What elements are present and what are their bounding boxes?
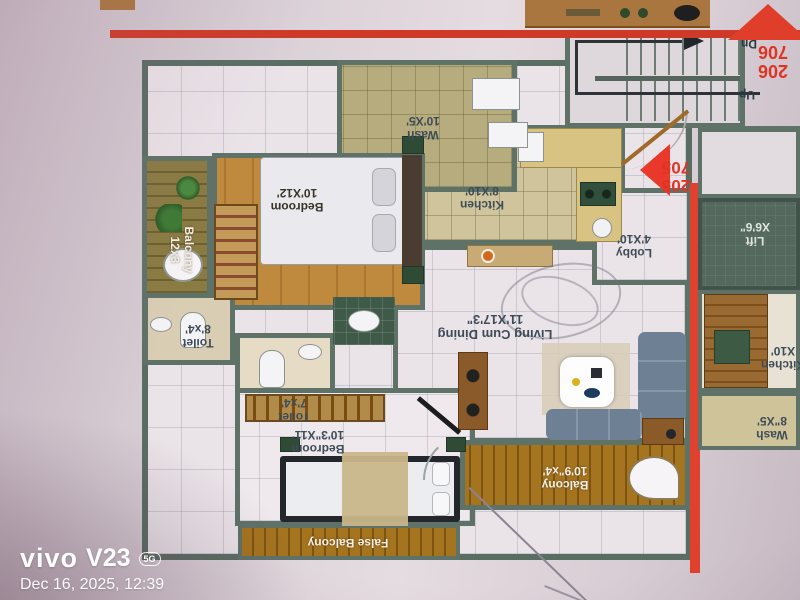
watermark-model: V23 [86, 544, 130, 573]
console-bowl-icon [481, 249, 495, 263]
adjacent-flat-hall [698, 128, 800, 198]
toilet-b-label: Toilet7'x4' [258, 396, 330, 424]
flat-number-corner: 206 706 [746, 42, 800, 80]
stair-arrow-line-3 [575, 40, 682, 43]
red-roof-mark [728, 4, 800, 40]
wash-sink-icon [488, 122, 528, 148]
living-label: Living Cum Dining11'X17'3" [425, 311, 565, 342]
tv-unit [458, 352, 488, 430]
table-decor-bowl [572, 378, 580, 386]
false-balcony-label: False Balcony [268, 536, 428, 550]
bed-master-pillow-1 [372, 214, 396, 252]
photo-of-floor-plan: Up Dn [0, 0, 800, 600]
bed-second-blanket [342, 452, 408, 526]
neighbour-strip-appliance [674, 5, 700, 21]
toilet-b-basin-icon [298, 344, 322, 360]
washing-machine-icon [472, 78, 520, 110]
bed-master-pillow-2 [372, 168, 396, 206]
bed-master-headboard [402, 155, 422, 267]
wash-label: Wash10'X5' [368, 114, 478, 142]
bedroom-second-label: Bedroom10'3"X11' [248, 428, 388, 456]
dining-table [560, 357, 614, 407]
balcony-side-label-wrap: Balcony12x3 [150, 180, 214, 320]
sofa-long [638, 332, 686, 422]
neighbour-strip-shelf [566, 9, 600, 16]
console-partition [467, 245, 553, 267]
bed-second-pillow-1 [432, 492, 450, 516]
neighbour-strip-corner [100, 0, 135, 10]
watermark-brand: vivo [20, 543, 78, 574]
camera-watermark: vivo V23 5G Dec 16, 2025, 12:39 [20, 543, 164, 594]
stairs-up-label: Up [730, 88, 764, 102]
toilet-b-wc-icon [259, 350, 285, 388]
table-decor-tray [591, 368, 602, 378]
kitchen-label: Kitchen8'X10' [432, 184, 532, 212]
balcony-side-label: Balcony12x3 [168, 227, 196, 274]
red-boundary-line-horizontal [110, 30, 800, 38]
watermark-timestamp: Dec 16, 2025, 12:39 [20, 576, 164, 594]
lobby-label: Lobby4'X10' [594, 232, 674, 260]
floor-plan: Up Dn [0, 0, 800, 600]
adjacent-wash-label: Wash8"X5' [734, 414, 800, 442]
toilet-a-label: Toilet8'x4' [158, 322, 238, 350]
coffee-table [642, 418, 684, 445]
stair-arrow-line-2 [575, 40, 578, 95]
balcony-front-label: Balcony10'9"x4' [510, 464, 620, 492]
lounge-chair-icon [628, 456, 680, 500]
flat-number-entrance: 205 705 [648, 158, 704, 194]
neighbour-strip-burner-2 [620, 8, 630, 18]
adjacent-kitchen-label: KitchenX10' [738, 344, 800, 372]
stove-icon [580, 182, 616, 206]
sofa-short [546, 409, 642, 440]
bedroom-master-label: Bedroom10'X12' [242, 186, 352, 214]
neighbour-strip-burner-1 [638, 8, 648, 18]
coffee-table-decor [666, 429, 676, 439]
table-decor-plate [584, 388, 600, 398]
adjacent-lift-label: LiftX6'6" [712, 220, 798, 248]
watermark-5g-badge: 5G [139, 552, 161, 566]
nightstand-1 [402, 266, 424, 284]
stair-mid-wall [595, 76, 740, 81]
toilet-b-shower-basin-icon [348, 310, 380, 332]
wardrobe-master [214, 204, 258, 300]
